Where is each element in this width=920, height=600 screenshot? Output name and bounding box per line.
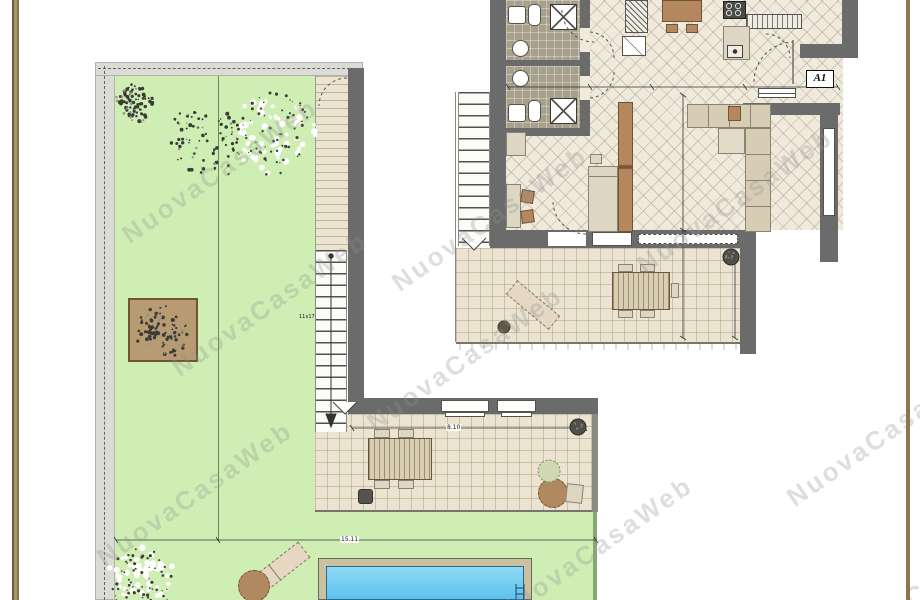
garden-boundary-left-dashes [104,66,106,600]
terrace-stair-edge [455,92,456,342]
garden-boundary-top-dashes [98,68,360,70]
north-east-wall [842,0,858,50]
tv-partition [618,102,633,232]
desk [506,184,521,228]
lower-window-1-sill [445,412,485,417]
bathroom-1-door-opening [580,28,590,52]
chair [374,429,390,438]
dining-chair [666,24,678,33]
floor-drain [358,489,373,504]
chair [398,429,414,438]
chair [618,264,633,272]
toilet-1 [512,40,529,57]
lower-terrace-right-wall [592,414,598,512]
dining-table [662,0,702,22]
bidet [528,4,541,26]
shower-1 [550,4,577,30]
dim-label-garden: 15.11 [340,536,359,543]
stair-label: 11x17 [298,314,316,321]
pool-water [326,566,524,600]
oven [727,45,743,58]
upper-terrace-floor [456,248,740,342]
entry-sidelight-window [758,88,796,98]
garden-staircase [315,250,347,432]
outdoor-table-lower [368,438,432,480]
fridge [625,0,648,33]
bathroom-east-wall [580,0,590,132]
sofa-seat-cushion [718,128,745,154]
wall-walkway-east [348,68,364,414]
bathroom-divider-wall [506,60,580,66]
lawn-right-edge [593,512,597,600]
chair [398,480,414,489]
bistro-chair [565,483,584,504]
bathroom-2-door-opening [580,76,590,100]
frame-left [12,0,19,600]
bed [588,166,618,232]
shower-2 [550,98,577,124]
outdoor-table-upper [612,272,670,310]
chair [640,310,655,318]
lower-terrace-edge [315,510,598,512]
bistro-table [538,478,568,508]
entry-step-wall [800,44,858,58]
east-window [823,128,835,216]
cabinet [506,132,526,156]
sink [508,6,526,24]
side-walkway [315,76,348,252]
chair [671,283,679,298]
pool-side-table [238,570,270,600]
unit-label-a1: A1 [806,70,834,88]
terrace-window-1 [592,232,632,246]
terrace-tick-row [460,344,736,350]
terrace-door-opening [548,232,586,246]
toilet-2 [512,70,529,87]
kitchen-counter [746,14,802,29]
nightstand [590,154,602,164]
chair [374,480,390,489]
chair [618,310,633,318]
dim-label-lower-terrace: 8.10 [446,424,461,431]
dining-chair [686,24,698,33]
sofa-side-table [728,106,741,121]
lower-window-2 [497,400,536,412]
sofa-back [745,128,771,232]
lawn-property-line [218,76,219,540]
stove [723,1,746,19]
lower-window-2-sill [501,412,532,417]
washing-machine [622,36,646,56]
upper-terrace-right-wall [740,244,756,354]
frame-right [906,0,910,600]
watermark-text: NuovaCasaWeb [781,355,920,513]
lower-window-1 [441,400,489,412]
terrace-window-2 [638,234,738,244]
sink [508,104,526,122]
desk-chair [520,209,535,224]
floor-plan-canvas: A1 8.10 15.11 11x17 NuovaCasaWebNuovaCas… [0,0,920,600]
apartment-west-wall [490,0,506,248]
desk-chair [520,189,535,204]
upper-terrace-edge [456,342,756,344]
terrace-staircase [458,92,490,246]
chair [640,264,655,272]
bidet [528,100,541,122]
planter-box [128,298,198,362]
